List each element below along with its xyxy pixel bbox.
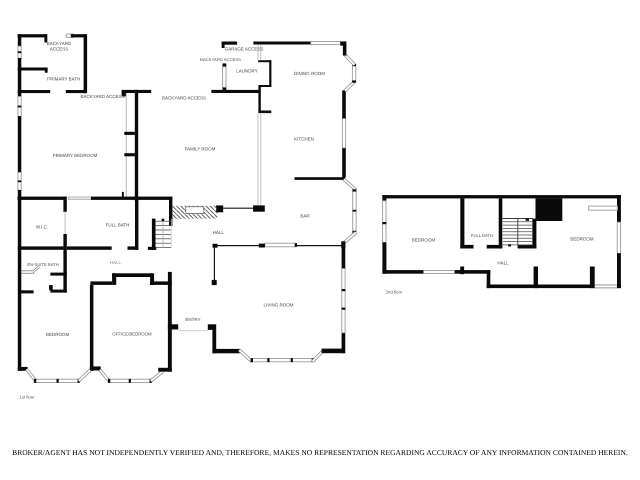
svg-text:BEDROOM: BEDROOM [46, 332, 70, 337]
svg-text:FULL BATH: FULL BATH [471, 233, 493, 238]
svg-text:1st floor: 1st floor [19, 395, 35, 400]
svg-text:GARAGE ACCESS: GARAGE ACCESS [225, 47, 264, 52]
svg-text:BROKER/AGENT HAS NOT INDEPENDE: BROKER/AGENT HAS NOT INDEPENDENTLY VERIF… [12, 448, 628, 457]
svg-text:HALL: HALL [497, 261, 509, 266]
svg-text:ACCESS: ACCESS [50, 47, 69, 52]
svg-text:BAR: BAR [300, 214, 310, 219]
svg-text:DINING ROOM: DINING ROOM [294, 71, 325, 76]
svg-text:W.I.C.: W.I.C. [36, 225, 48, 230]
svg-text:BEDROOM: BEDROOM [570, 237, 594, 242]
svg-text:PRIMARY BATH: PRIMARY BATH [47, 76, 80, 81]
svg-text:KITCHEN: KITCHEN [294, 137, 314, 142]
svg-text:BEDROOM: BEDROOM [412, 237, 436, 242]
svg-text:FAMILY ROOM: FAMILY ROOM [185, 147, 216, 152]
svg-text:HALL: HALL [213, 230, 225, 235]
svg-text:BACKYARD ACCESS: BACKYARD ACCESS [200, 57, 241, 62]
svg-text:PRIMARY BEDROOM: PRIMARY BEDROOM [53, 153, 98, 158]
svg-text:HALL: HALL [110, 260, 122, 265]
svg-text:FULL BATH: FULL BATH [106, 223, 130, 228]
svg-text:LAUNDRY: LAUNDRY [236, 69, 257, 74]
svg-text:ENTRY: ENTRY [185, 317, 200, 322]
svg-text:BACKYARD ACCESS: BACKYARD ACCESS [162, 96, 206, 101]
svg-text:LIVING ROOM: LIVING ROOM [263, 302, 293, 307]
svg-text:BACKYARD: BACKYARD [47, 41, 72, 46]
svg-text:2nd floor: 2nd floor [386, 289, 403, 294]
svg-text:EN-SUITE BATH: EN-SUITE BATH [27, 262, 59, 267]
svg-text:OFFICE/BEDROOM: OFFICE/BEDROOM [112, 332, 152, 337]
svg-text:BACKYARD ACCESS: BACKYARD ACCESS [81, 94, 125, 99]
